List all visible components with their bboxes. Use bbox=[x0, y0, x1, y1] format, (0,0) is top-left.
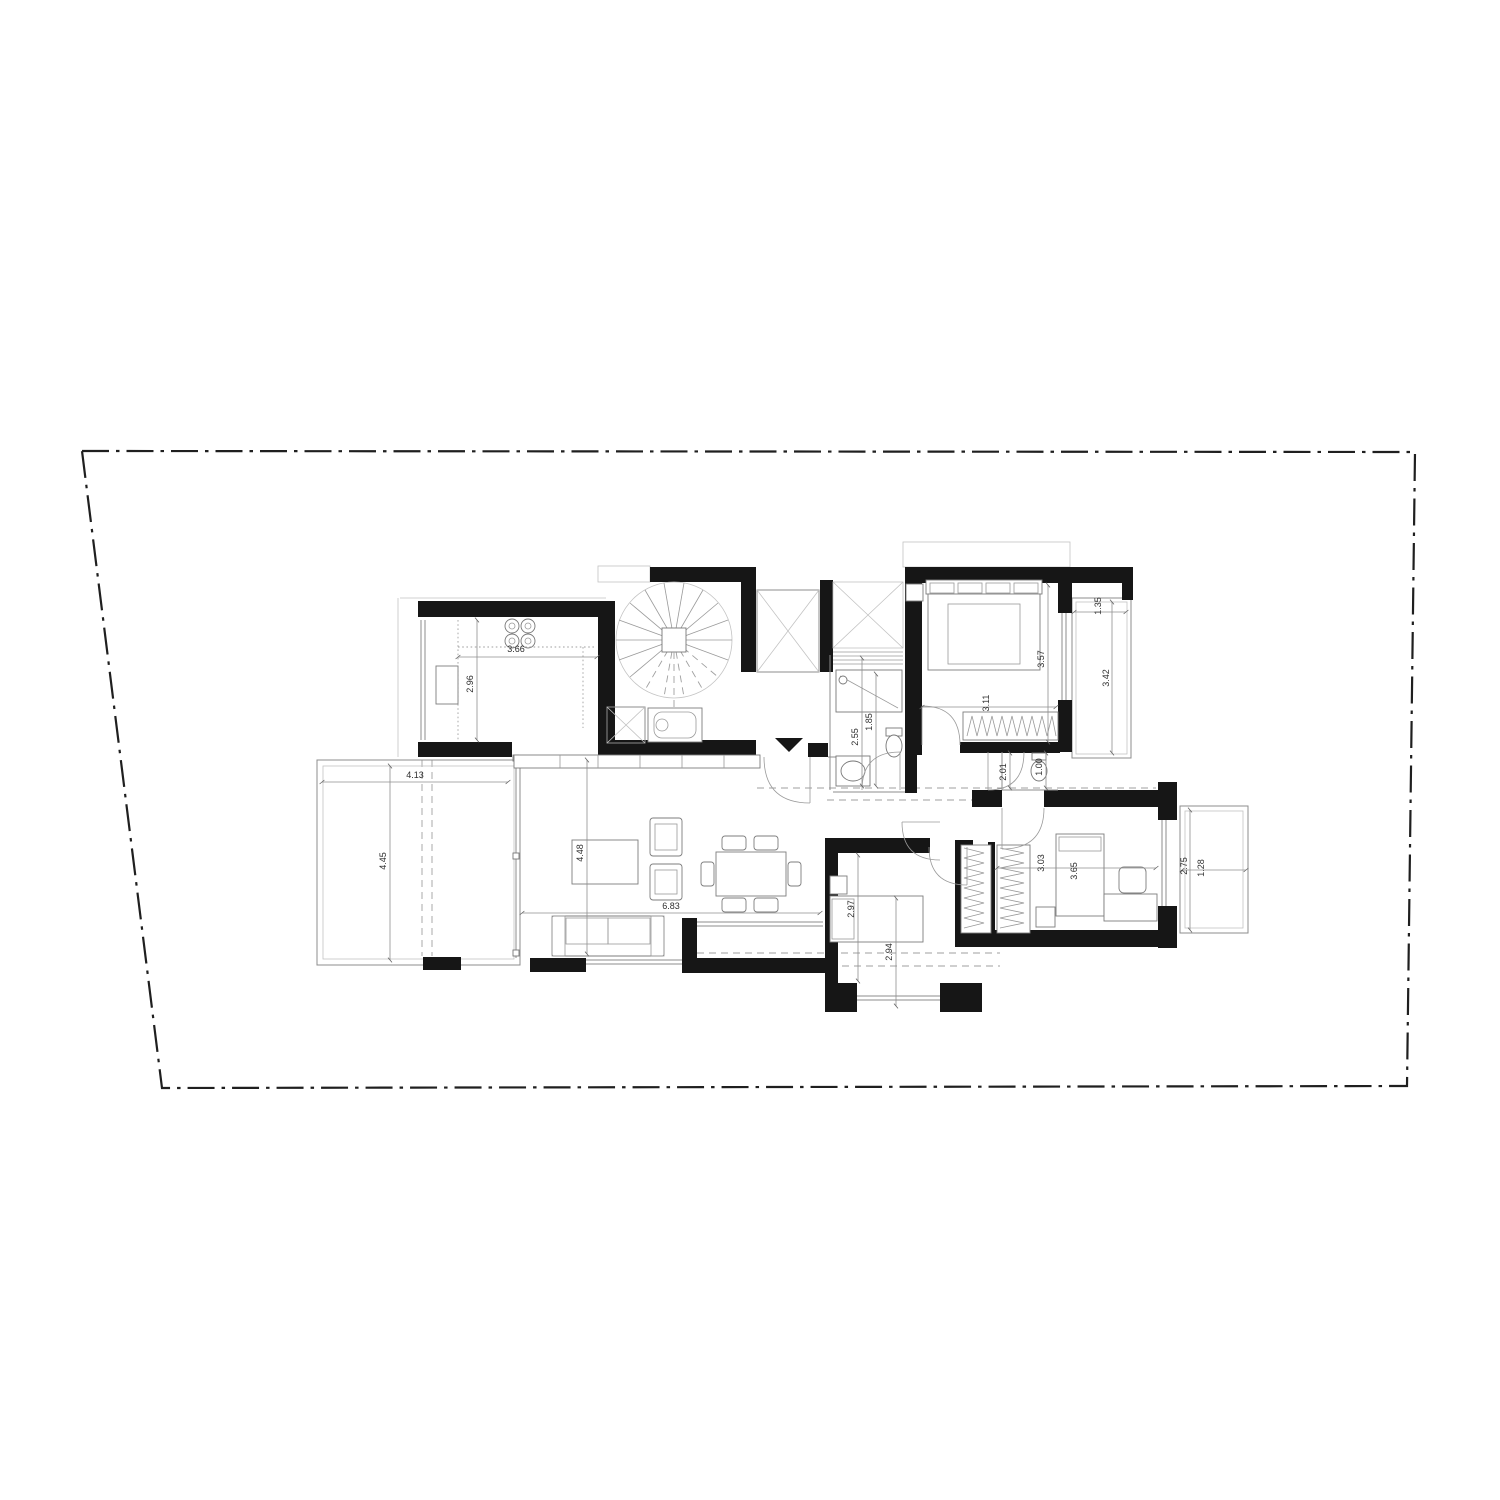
nightstand bbox=[830, 876, 847, 894]
walls bbox=[418, 567, 1177, 1012]
dim-bedroom2-width: 2.94 bbox=[884, 943, 894, 961]
desk bbox=[1104, 894, 1157, 921]
bedroom-3 bbox=[997, 834, 1157, 933]
dim-hall-wc-width: 1.00 bbox=[1034, 758, 1044, 776]
wardrobe bbox=[963, 712, 1058, 740]
shaft-void-2 bbox=[833, 582, 903, 664]
armchair bbox=[650, 864, 682, 900]
single-bed bbox=[830, 896, 923, 942]
entrance-door bbox=[764, 757, 810, 803]
dim-bedroom2-depth: 2.97 bbox=[846, 900, 856, 918]
dim-living-width: 6.83 bbox=[662, 901, 680, 911]
sideboard bbox=[514, 755, 760, 768]
dining-table bbox=[701, 836, 801, 912]
desk-chair bbox=[1119, 867, 1146, 893]
floor-plan-sheet: 3.66 2.96 4.13 4.45 4.48 6.83 1.85 2.55 … bbox=[0, 0, 1500, 1500]
dim-balcony3-width: 1.28 bbox=[1196, 859, 1206, 877]
stair-closet bbox=[607, 707, 702, 743]
shower bbox=[836, 670, 902, 712]
armchair bbox=[650, 818, 682, 856]
wardrobe bbox=[997, 845, 1030, 933]
dim-bedroom1-depth: 3.57 bbox=[1036, 650, 1046, 668]
kitchen-appliance bbox=[436, 666, 458, 704]
kitchen bbox=[436, 619, 596, 740]
dim-balcony1-width: 1.35 bbox=[1093, 597, 1103, 615]
bedroom3-door bbox=[1002, 808, 1044, 849]
nightstand bbox=[906, 584, 923, 601]
dim-living-depth: 4.48 bbox=[575, 844, 585, 862]
terrace-left bbox=[317, 755, 520, 965]
dim-kitchen-width: 3.66 bbox=[507, 644, 525, 654]
dim-bedroom3-bed: 3.65 bbox=[1069, 862, 1079, 880]
floor-plan-drawing: 3.66 2.96 4.13 4.45 4.48 6.83 1.85 2.55 … bbox=[0, 0, 1500, 1500]
dim-balcony1-depth: 3.42 bbox=[1101, 669, 1111, 687]
dim-hall-wc-depth: 2.01 bbox=[998, 763, 1008, 781]
dim-balcony3-depth: 2.75 bbox=[1179, 857, 1189, 875]
single-bed bbox=[1056, 834, 1104, 916]
dim-terrace-depth: 4.45 bbox=[378, 852, 388, 870]
double-bed bbox=[926, 580, 1042, 670]
sofa bbox=[552, 916, 664, 956]
nightstand bbox=[1036, 907, 1055, 927]
wardrobe bbox=[961, 845, 991, 933]
property-boundary bbox=[82, 451, 1415, 1088]
dim-bathroom-depth: 2.55 bbox=[850, 728, 860, 746]
dim-bedroom1-width: 3.11 bbox=[981, 695, 991, 712]
dim-kitchen-depth: 2.96 bbox=[465, 675, 475, 693]
dim-terrace-width: 4.13 bbox=[406, 770, 424, 780]
shaft-void-1 bbox=[757, 590, 819, 672]
bedroom1-door bbox=[922, 706, 960, 745]
dim-bedroom3-width: 3.03 bbox=[1036, 854, 1046, 872]
entrance-arrow-icon bbox=[775, 738, 803, 752]
dim-shower-depth: 1.85 bbox=[864, 713, 874, 731]
